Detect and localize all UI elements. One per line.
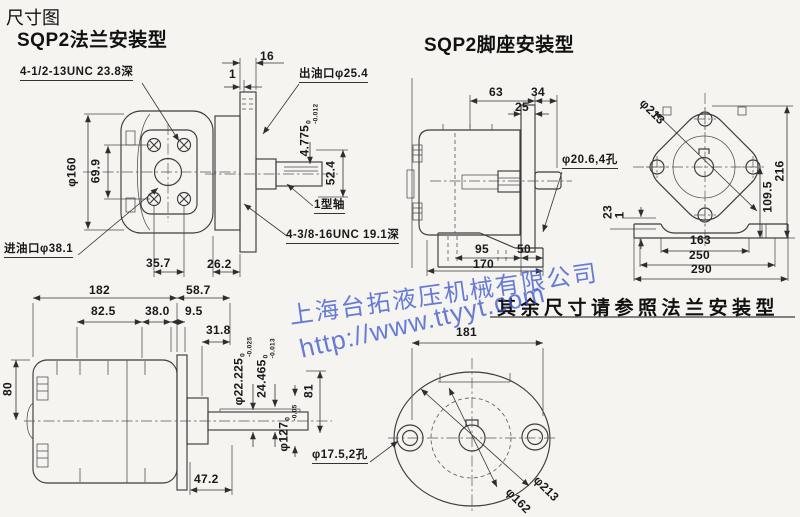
dim-side-thread-label: 4-3/8-16UNC 19.1深 — [286, 229, 399, 244]
dim-182: 182 — [89, 284, 110, 297]
dim-50: 50 — [517, 243, 531, 256]
dim-pilot-diameter: φ1270-0.05 — [278, 404, 299, 451]
dim-81: 81 — [303, 384, 316, 398]
dim-170: 170 — [473, 258, 494, 271]
dim-inlet-port-label: 进油口φ38.1 — [4, 243, 73, 258]
dim-63: 63 — [489, 86, 503, 99]
flange-side-view — [205, 58, 348, 252]
dim-26-2: 26.2 — [207, 258, 232, 271]
dim-31-8: 31.8 — [206, 324, 231, 337]
dim-250: 250 — [689, 249, 710, 262]
dim-outlet-port-label: 出油口φ25.4 — [299, 68, 368, 83]
dim-80: 80 — [2, 382, 15, 396]
dim-key-total: 24.4650-0.013 — [256, 338, 277, 398]
dim-181: 181 — [456, 326, 477, 339]
foot-front-base — [634, 224, 788, 238]
flange-section-title: SQP2法兰安装型 — [17, 25, 167, 52]
dim-47-2: 47.2 — [194, 473, 219, 486]
dim-38-0: 38.0 — [145, 305, 170, 318]
dim-82-5: 82.5 — [91, 305, 116, 318]
dim-foot-holes-label: φ20.6,4孔 — [562, 154, 618, 169]
shaft-type-label: 1型轴 — [314, 199, 345, 214]
dim-outer-diameter: φ160 — [66, 157, 79, 187]
dim-109-5: 109.5 — [762, 181, 775, 213]
dim-shaft-diameter: φ22.2250-0.025 — [233, 337, 254, 406]
dim-216: 216 — [774, 161, 787, 182]
reference-note: 其余尺寸请参照法兰安装型 — [497, 293, 779, 320]
foot-section-title: SQP2脚座安装型 — [424, 30, 574, 57]
foot-bottom-view — [370, 343, 558, 514]
dim-foot-1: 1 — [614, 212, 627, 219]
dim-58-7: 58.7 — [186, 284, 211, 297]
dim-52-4: 52.4 — [325, 161, 338, 186]
dim-35-7: 35.7 — [146, 257, 171, 270]
dim-34: 34 — [531, 86, 545, 99]
foot-side-view — [407, 78, 572, 276]
dim-flange-thread-label: 4-1/2-13UNC 23.8深 — [20, 66, 133, 81]
dim-9-5: 9.5 — [185, 305, 203, 318]
dim-95: 95 — [475, 243, 489, 256]
dim-bottom-holes-label: φ17.5,2孔 — [312, 449, 368, 464]
dim-25: 25 — [515, 101, 529, 114]
dim-290: 290 — [691, 263, 712, 276]
dimension-drawing-page: 尺寸图 SQP2法兰安装型 SQP2脚座安装型 其余尺寸请参照法兰安装型 4-1… — [0, 0, 800, 517]
dim-bolt-spacing-vertical: 69.9 — [90, 159, 103, 184]
dim-16: 16 — [260, 50, 274, 63]
dim-163: 163 — [690, 234, 711, 247]
dim-1: 1 — [229, 68, 236, 81]
dim-key-height: 4.7750-0.012 — [299, 104, 320, 157]
flange-profile-view — [11, 298, 332, 495]
